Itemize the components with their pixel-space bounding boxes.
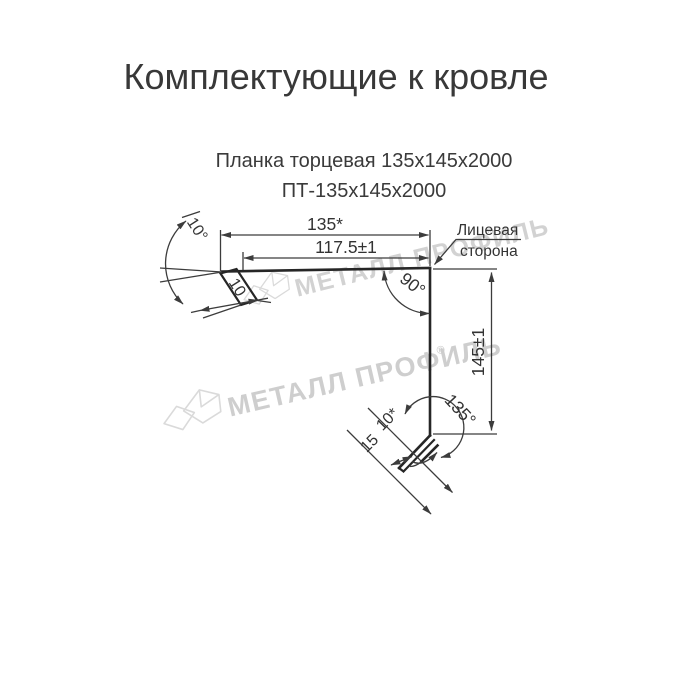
face-side-line1: Лицевая <box>457 222 518 239</box>
left-angle-dim: 10° <box>160 212 222 305</box>
watermark-lower: МЕТАЛЛ ПРОФИЛЬ ® <box>158 321 504 437</box>
extension-line <box>258 301 272 303</box>
bottom-angle-dim: 135° <box>405 390 480 458</box>
dim-bottom-angle: 135° <box>441 390 480 430</box>
face-side-line2: сторона <box>460 243 518 260</box>
left-flange-dim: 10 <box>191 276 271 318</box>
dim-left-flange: 10 <box>225 276 249 300</box>
metall-profil-logo-icon <box>158 386 224 434</box>
dim-side-height: 145±1 <box>468 328 488 377</box>
technical-drawing: МЕТАЛЛ ПРОФИЛЬ ® МЕТАЛЛ ПРОФИЛЬ ® <box>0 0 700 700</box>
bottom-flange-dims: 10* 15 <box>347 405 453 514</box>
dim-left-angle: 10° <box>183 215 210 245</box>
extension-line <box>160 268 222 272</box>
dim-top-width-inner: 117.5±1 <box>315 237 377 257</box>
dim-hem: 10* <box>373 405 402 434</box>
angle-arc <box>166 221 186 304</box>
dim-bottom-flange: 15 <box>358 431 383 456</box>
page: Комплектующие к кровле Планка торцевая 1… <box>0 0 700 700</box>
extension-line <box>160 272 222 282</box>
dim-top-width: 135* <box>307 214 343 234</box>
